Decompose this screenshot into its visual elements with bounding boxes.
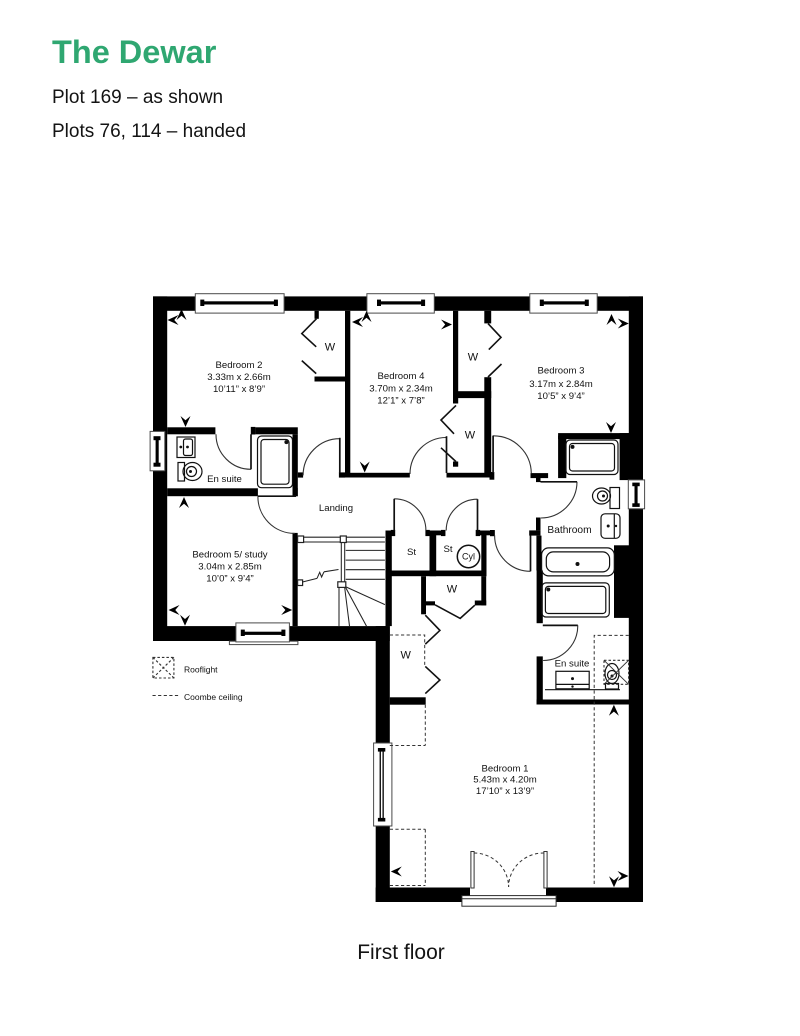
svg-text:W: W — [465, 430, 476, 442]
svg-text:5.43m x 4.20m: 5.43m x 4.20m — [473, 775, 536, 786]
svg-text:W: W — [401, 650, 412, 662]
svg-text:W: W — [468, 352, 479, 364]
svg-text:Coombe ceiling: Coombe ceiling — [184, 692, 243, 702]
svg-text:3.70m x 2.34m: 3.70m x 2.34m — [369, 383, 432, 394]
svg-text:Bedroom 1: Bedroom 1 — [482, 764, 529, 775]
svg-text:3.04m x 2.85m: 3.04m x 2.85m — [198, 562, 261, 573]
svg-text:Plot 169 – as shown: Plot 169 – as shown — [52, 87, 223, 108]
svg-text:12’1” x 7’8”: 12’1” x 7’8” — [377, 395, 424, 406]
svg-text:First floor: First floor — [357, 941, 445, 964]
svg-text:Bathroom: Bathroom — [547, 525, 591, 536]
svg-text:St: St — [407, 547, 416, 558]
svg-text:3.17m x 2.84m: 3.17m x 2.84m — [529, 379, 592, 390]
svg-text:10’0” x 9’4”: 10’0” x 9’4” — [206, 573, 253, 584]
svg-text:Cyl: Cyl — [462, 552, 475, 562]
svg-text:Bedroom 3: Bedroom 3 — [538, 366, 585, 377]
svg-text:Landing: Landing — [319, 503, 353, 514]
svg-text:The Dewar: The Dewar — [52, 34, 217, 70]
svg-text:17’10” x 13’9”: 17’10” x 13’9” — [476, 786, 534, 797]
svg-text:W: W — [325, 342, 336, 354]
svg-text:En suite: En suite — [555, 659, 590, 670]
svg-text:En suite: En suite — [207, 474, 242, 485]
svg-text:3.33m x 2.66m: 3.33m x 2.66m — [207, 372, 270, 383]
svg-text:Rooflight: Rooflight — [184, 665, 218, 675]
svg-text:Bedroom 2: Bedroom 2 — [216, 360, 263, 371]
svg-text:10’11” x 8’9”: 10’11” x 8’9” — [213, 384, 265, 395]
svg-text:10’5” x 9’4”: 10’5” x 9’4” — [537, 391, 584, 402]
svg-text:Plots 76, 114 – handed: Plots 76, 114 – handed — [52, 121, 246, 142]
svg-text:Bedroom 4: Bedroom 4 — [378, 371, 426, 382]
svg-text:St: St — [443, 544, 452, 555]
svg-text:Bedroom 5/ study: Bedroom 5/ study — [192, 550, 267, 561]
svg-text:W: W — [447, 584, 458, 596]
